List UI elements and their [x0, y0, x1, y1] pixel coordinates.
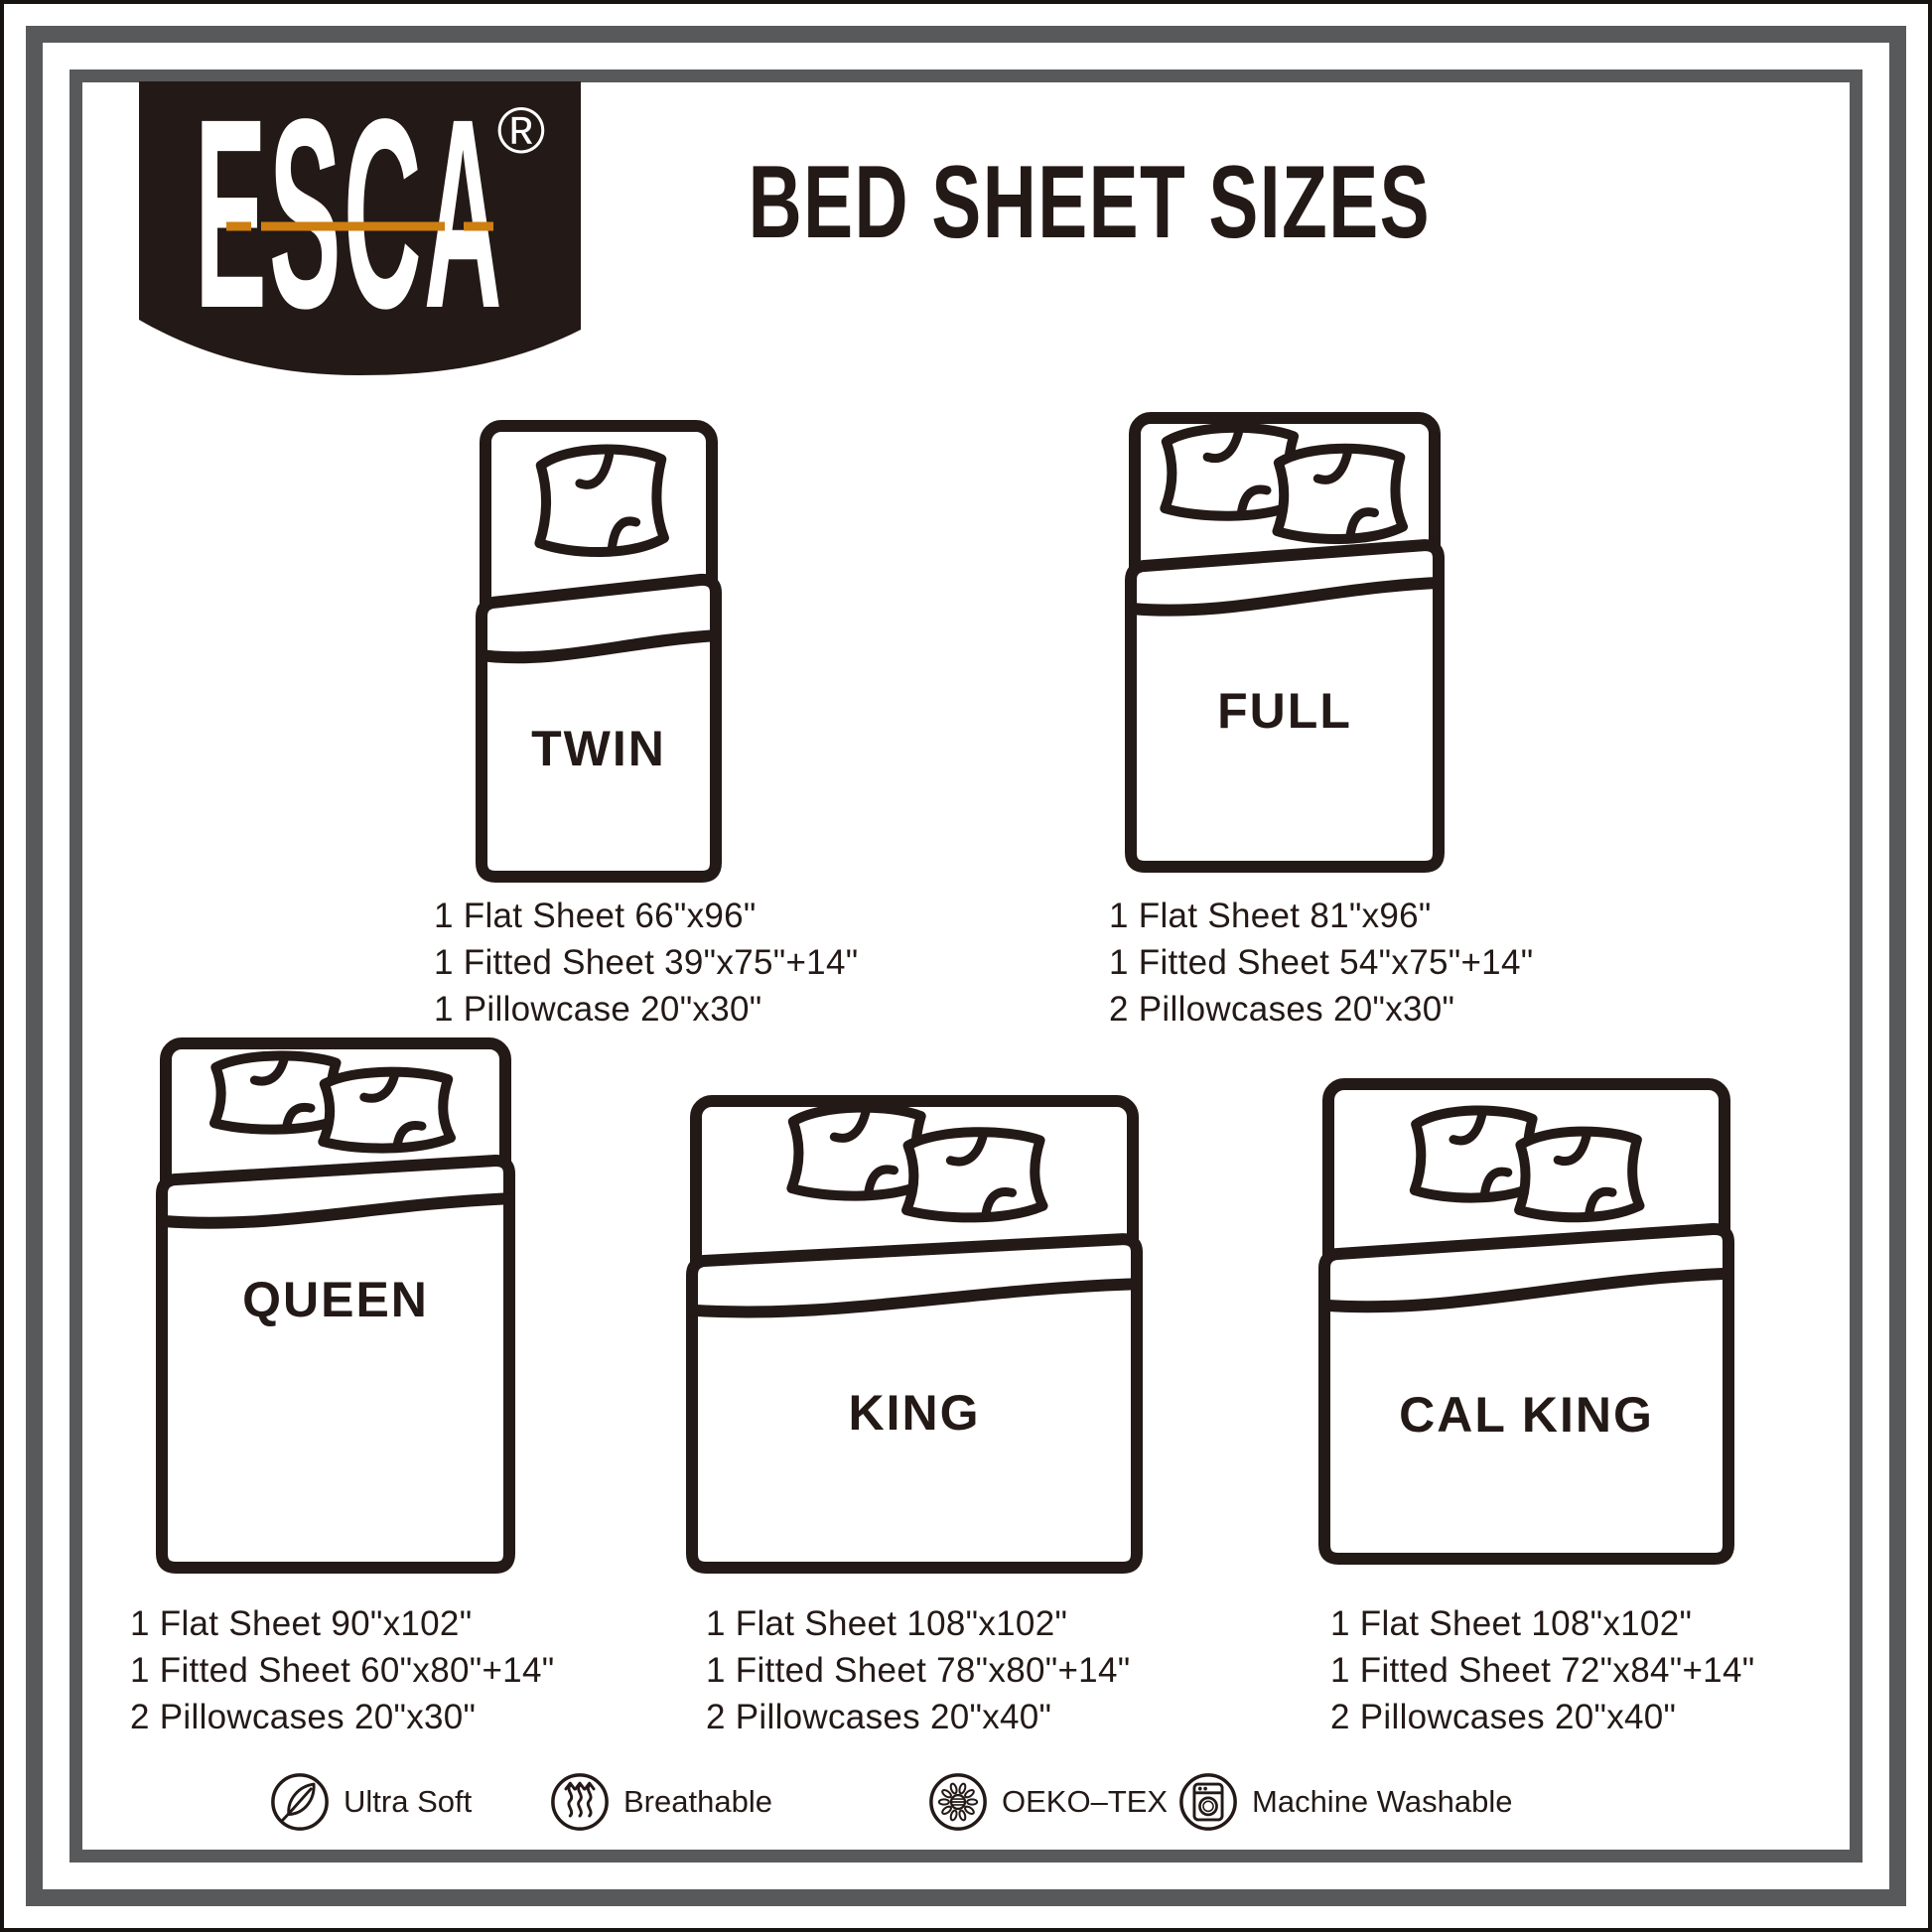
spec-line: 1 Flat Sheet 90"x102" [130, 1600, 554, 1647]
spec-line: 1 Fitted Sheet 72"x84"+14" [1330, 1647, 1754, 1694]
king-specs: 1 Flat Sheet 108"x102" 1 Fitted Sheet 78… [706, 1600, 1130, 1740]
spec-line: 1 Flat Sheet 108"x102" [1330, 1600, 1754, 1647]
washing-machine-icon [1177, 1771, 1239, 1833]
oeko-loop [958, 1810, 966, 1821]
bed-size-label: FULL [1217, 683, 1352, 739]
bed-size-label: KING [849, 1385, 981, 1441]
feature-label: Machine Washable [1252, 1784, 1513, 1820]
spec-line: 1 Fitted Sheet 78"x80"+14" [706, 1647, 1130, 1694]
spec-line: 1 Pillowcase 20"x30" [434, 986, 858, 1033]
air-waves-icon [549, 1771, 611, 1833]
spec-line: 2 Pillowcases 20"x40" [1330, 1694, 1754, 1740]
full-specs: 1 Flat Sheet 81"x96" 1 Fitted Sheet 54"x… [1109, 893, 1533, 1033]
bed-size-label: CAL KING [1399, 1387, 1654, 1443]
pillow-shape [791, 1108, 923, 1196]
feature-machine-washable: Machine Washable [1177, 1771, 1513, 1833]
feature-oeko-tex: OEKO–TEX [927, 1771, 1168, 1833]
twin-specs: 1 Flat Sheet 66"x96" 1 Fitted Sheet 39"x… [434, 893, 858, 1033]
feather-icon [269, 1771, 331, 1833]
spec-line: 2 Pillowcases 20"x40" [706, 1694, 1130, 1740]
queen-specs: 1 Flat Sheet 90"x102" 1 Fitted Sheet 60"… [130, 1600, 554, 1740]
full-bed-diagram: FULL [1124, 411, 1446, 874]
bed-size-label: TWIN [531, 721, 666, 776]
oeko-loop [950, 1810, 958, 1821]
esca-logo-badge: ESCA ® [139, 81, 581, 379]
pillow-shape [539, 450, 664, 552]
feature-label: OEKO–TEX [1002, 1784, 1168, 1820]
spec-line: 1 Flat Sheet 66"x96" [434, 893, 858, 939]
feature-label: Breathable [623, 1784, 772, 1820]
oeko-tex-icon [927, 1771, 989, 1833]
oeko-loop [958, 1783, 966, 1794]
queen-bed-diagram: QUEEN [155, 1036, 516, 1575]
spec-line: 1 Flat Sheet 81"x96" [1109, 893, 1533, 939]
feature-ultra-soft: Ultra Soft [269, 1771, 472, 1833]
pillow-shape [906, 1132, 1042, 1217]
spec-line: 1 Fitted Sheet 39"x75"+14" [434, 939, 858, 986]
page-title: BED SHEET SIZES [616, 151, 1489, 254]
twin-bed-diagram: TWIN [475, 419, 723, 884]
cal-king-bed-diagram: CAL KING [1317, 1077, 1735, 1566]
spec-line: 2 Pillowcases 20"x30" [1109, 986, 1533, 1033]
spec-line: 1 Fitted Sheet 54"x75"+14" [1109, 939, 1533, 986]
feature-label: Ultra Soft [344, 1784, 472, 1820]
oeko-loop [967, 1799, 977, 1804]
spec-line: 2 Pillowcases 20"x30" [130, 1694, 554, 1740]
registered-trademark-icon: ® [497, 93, 546, 167]
oeko-loop [939, 1799, 949, 1804]
feature-breathable: Breathable [549, 1771, 772, 1833]
spec-line: 1 Flat Sheet 108"x102" [706, 1600, 1130, 1647]
cal-king-specs: 1 Flat Sheet 108"x102" 1 Fitted Sheet 72… [1330, 1600, 1754, 1740]
spec-line: 1 Fitted Sheet 60"x80"+14" [130, 1647, 554, 1694]
oeko-loop [950, 1783, 958, 1794]
king-bed-diagram: KING [685, 1094, 1144, 1575]
bed-size-label: QUEEN [242, 1272, 429, 1327]
pillow-shape [1277, 449, 1403, 539]
